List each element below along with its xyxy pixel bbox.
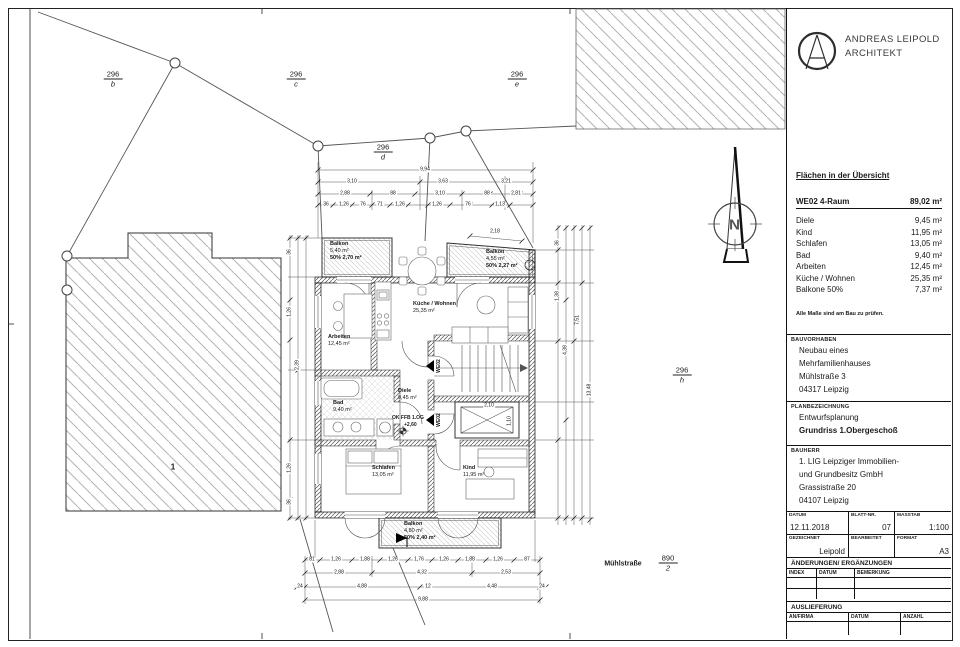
planbezeichnung-section: PLANBEZEICHNUNG Entwurfsplanung Grundris… bbox=[787, 401, 951, 445]
sofa bbox=[452, 287, 528, 343]
kitchen-counter bbox=[375, 282, 391, 340]
north-arrow-icon bbox=[708, 147, 762, 262]
area-row: Küche / Wohnen25,35 m² bbox=[796, 273, 942, 285]
area-row: Kind11,95 m² bbox=[796, 227, 942, 239]
area-row: Arbeiten12,45 m² bbox=[796, 261, 942, 273]
stamp-bearbeitet: BEARBEITET bbox=[849, 535, 895, 558]
neighbor-building-west bbox=[66, 233, 281, 511]
area-unit-row: WE02 4-Raum89,02 m² bbox=[796, 197, 942, 209]
coffee-table bbox=[477, 296, 495, 314]
stamp-blatt: BLATT-NR.07 bbox=[849, 512, 895, 535]
balcony-top-right bbox=[447, 243, 535, 277]
measure-note: Alle Maße sind am Bau zu prüfen. bbox=[796, 311, 942, 317]
delivery-row bbox=[787, 622, 951, 635]
washstand bbox=[324, 419, 393, 436]
delivery-table: AUSLIEFERUNG AN/FIRMA DATUM ANZAHL bbox=[787, 601, 951, 639]
floor-plan bbox=[315, 238, 535, 548]
stamp-gezeichnet: GEZEICHNETLeipold bbox=[787, 535, 849, 558]
revision-row bbox=[787, 589, 951, 599]
area-row: Diele9,45 m² bbox=[796, 215, 942, 227]
balcony-top-left bbox=[322, 238, 392, 277]
drawing-sheet: ANDREAS LEIPOLD ARCHITEKT 296b 296c 296e… bbox=[0, 0, 960, 647]
stamp-format: FORMATA3 bbox=[895, 535, 952, 558]
area-summary-heading: Flächen in der Übersicht bbox=[796, 171, 942, 180]
architect-header bbox=[787, 8, 951, 165]
area-row: Bad9,40 m² bbox=[796, 250, 942, 262]
revisions-table: ÄNDERUNGEN/ ERGÄNZUNGEN INDEX DATUM BEME… bbox=[787, 557, 951, 601]
plan-title: Grundriss 1.Obergeschoß bbox=[799, 424, 951, 437]
balcony-bottom bbox=[379, 518, 501, 548]
staircase bbox=[440, 345, 528, 392]
kind-furniture bbox=[466, 449, 527, 499]
neighbor-building-north bbox=[576, 9, 785, 129]
bed-schlafen bbox=[346, 449, 401, 494]
stamp-table: DATUM12.11.2018 BLATT-NR.07 MASSTAB1:100… bbox=[787, 511, 951, 557]
title-block: Flächen in der Übersicht WE02 4-Raum89,0… bbox=[786, 8, 951, 639]
area-row: Schlafen13,05 m² bbox=[796, 238, 942, 250]
dining-set bbox=[399, 247, 445, 295]
bauvorhaben-section: BAUVORHABEN Neubau eines Mehrfamilienhau… bbox=[787, 334, 951, 401]
desk-arbeiten bbox=[334, 294, 373, 338]
bathtub bbox=[321, 378, 362, 399]
stamp-massstab: MASSTAB1:100 bbox=[895, 512, 952, 535]
area-row: Balkone 50%7,37 m² bbox=[796, 284, 942, 296]
elevator bbox=[455, 402, 519, 438]
area-summary: Flächen in der Übersicht WE02 4-Raum89,0… bbox=[787, 165, 951, 334]
bauherr-section: BAUHERR 1. LIG Leipziger Immobilien- und… bbox=[787, 445, 951, 511]
revision-row bbox=[787, 578, 951, 589]
stamp-datum: DATUM12.11.2018 bbox=[787, 512, 849, 535]
